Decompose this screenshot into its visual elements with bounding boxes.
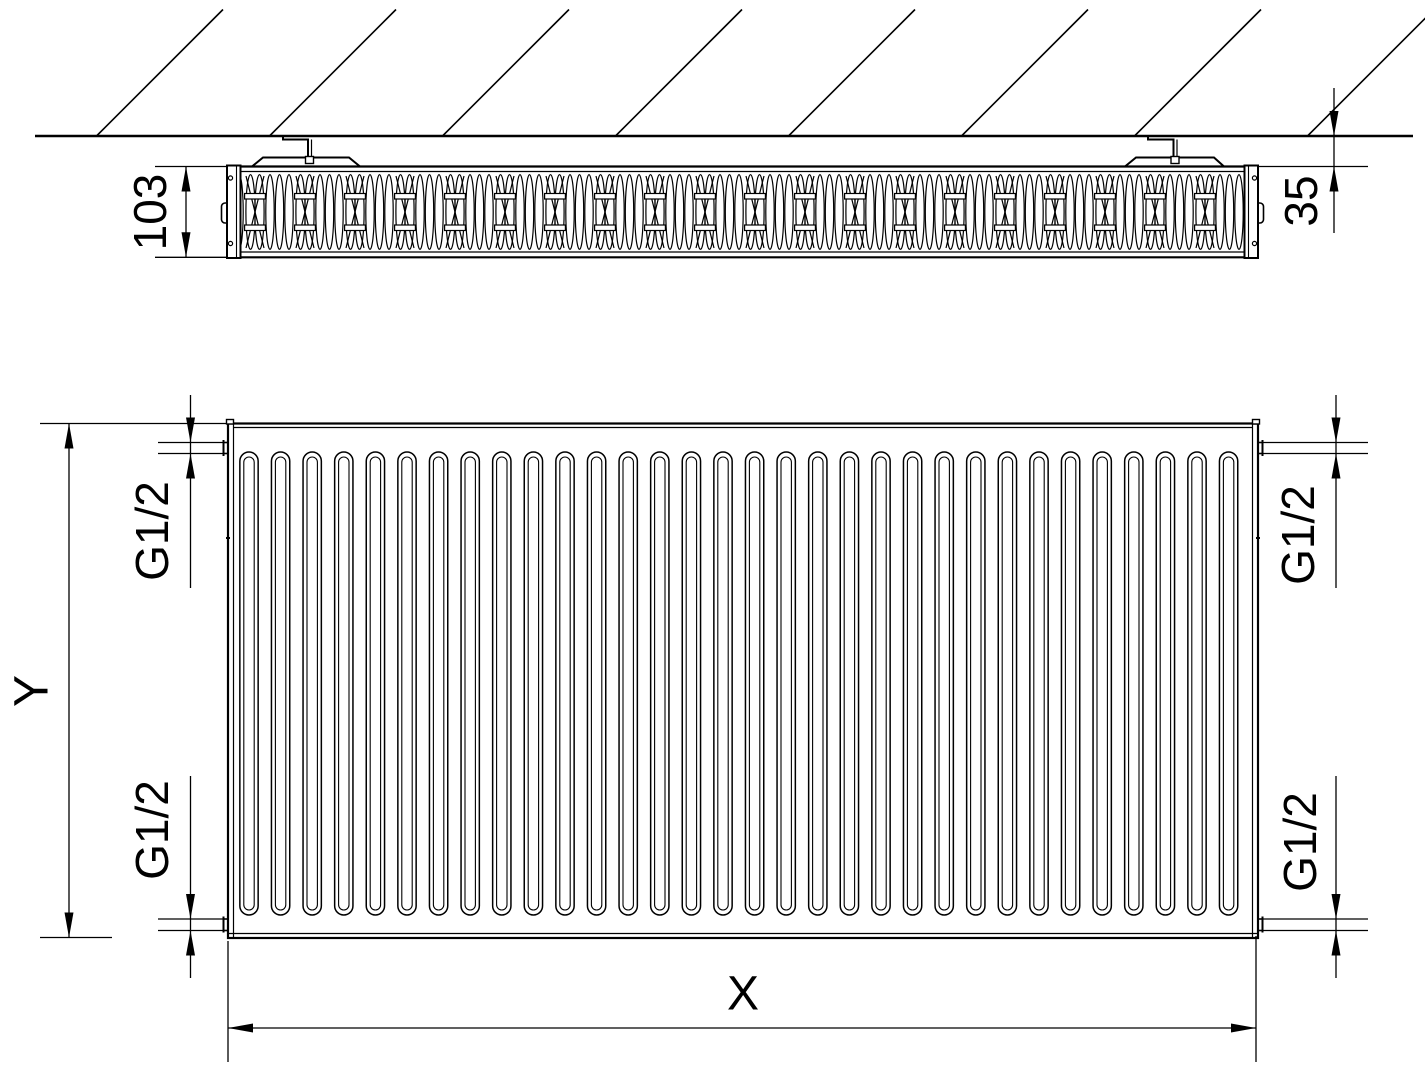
dimension-arrow bbox=[1330, 111, 1339, 136]
depth-dimension: 103 bbox=[124, 167, 191, 258]
screw-dot bbox=[228, 241, 232, 245]
dimension-arrow bbox=[1330, 167, 1339, 192]
dimension-arrow bbox=[65, 913, 74, 938]
dimension-arrow bbox=[186, 418, 195, 443]
wall-distance-dimension-label: 35 bbox=[1275, 175, 1327, 226]
dimension-arrow bbox=[1332, 931, 1341, 956]
screw-dot bbox=[228, 176, 232, 180]
dimension-arrow bbox=[186, 931, 195, 956]
connection-g12-top-left-label: G1/2 bbox=[126, 481, 178, 581]
connection-g12-bottom-left-label: G1/2 bbox=[126, 780, 178, 880]
dimension-arrow bbox=[1231, 1024, 1256, 1033]
convector-fins bbox=[241, 172, 1246, 253]
dimension-arrow bbox=[182, 232, 191, 257]
radiator-technical-drawing: 103 35 bbox=[0, 0, 1425, 1071]
screw-dot bbox=[1252, 241, 1256, 245]
dimension-arrow bbox=[65, 424, 74, 449]
dimension-arrow bbox=[182, 167, 191, 192]
wall-distance-dimension: 35 bbox=[1275, 88, 1339, 233]
width-dimension-label: X bbox=[727, 968, 759, 1021]
corner-nub-left bbox=[227, 420, 234, 425]
dimension-arrow bbox=[228, 1024, 253, 1033]
dimension-arrow bbox=[186, 454, 195, 479]
mounting-bracket-right bbox=[1125, 136, 1224, 167]
height-dimension: Y bbox=[6, 424, 74, 938]
dimension-arrow bbox=[1332, 418, 1341, 443]
connection-dimension-bottom-left: G1/2 bbox=[126, 776, 224, 978]
connection-g12-bottom-right-label: G1/2 bbox=[1274, 792, 1326, 892]
height-dimension-label: Y bbox=[6, 675, 59, 707]
mounting-bracket-left bbox=[252, 136, 360, 167]
depth-dimension-label: 103 bbox=[124, 174, 176, 251]
connection-g12-top-right-label: G1/2 bbox=[1272, 485, 1324, 585]
wall-hatching bbox=[97, 10, 1425, 136]
connection-dimension-bottom-right: G1/2 bbox=[1262, 776, 1368, 978]
connection-dimension-top-right: G1/2 bbox=[1262, 395, 1368, 588]
dimension-arrow bbox=[186, 894, 195, 919]
width-dimension: X bbox=[228, 936, 1256, 1062]
radiator-front-view bbox=[40, 420, 1263, 939]
drawing-canvas: 103 35 bbox=[0, 0, 1425, 1071]
dimension-arrow bbox=[1332, 894, 1341, 919]
radiator-top-view bbox=[155, 166, 1368, 259]
corner-nub-right bbox=[1253, 420, 1260, 425]
screw-dot bbox=[1252, 176, 1256, 180]
dimension-arrow bbox=[1332, 454, 1341, 479]
